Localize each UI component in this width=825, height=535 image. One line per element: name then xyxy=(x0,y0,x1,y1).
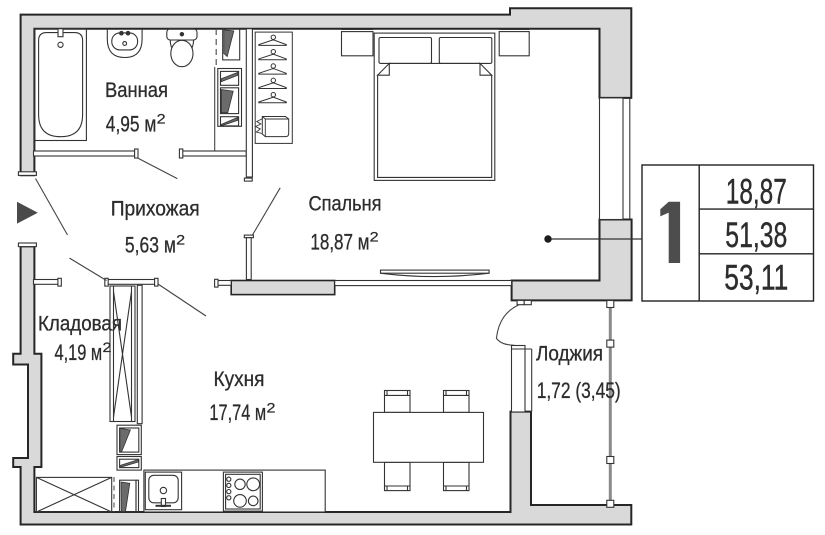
svg-text:2: 2 xyxy=(267,399,276,415)
svg-text:2: 2 xyxy=(176,232,185,248)
svg-text:1,72 (3,45): 1,72 (3,45) xyxy=(537,378,621,403)
svg-text:5,63 м: 5,63 м xyxy=(125,233,176,258)
svg-text:4,19 м: 4,19 м xyxy=(55,340,103,365)
svg-text:Прихожая: Прихожая xyxy=(111,198,200,221)
svg-text:51,38: 51,38 xyxy=(725,216,787,255)
svg-text:Спальня: Спальня xyxy=(309,193,382,216)
svg-text:4,95 м: 4,95 м xyxy=(106,112,157,137)
svg-text:53,11: 53,11 xyxy=(724,259,788,298)
svg-text:Кухня: Кухня xyxy=(214,368,265,391)
svg-text:17,74 м: 17,74 м xyxy=(209,400,266,425)
svg-text:18,87: 18,87 xyxy=(726,172,787,211)
svg-text:2: 2 xyxy=(157,111,166,127)
svg-text:2: 2 xyxy=(370,229,379,245)
svg-text:Ванная: Ванная xyxy=(105,79,168,102)
svg-text:Лоджия: Лоджия xyxy=(536,343,603,366)
svg-text:Кладовая: Кладовая xyxy=(38,312,122,335)
svg-text:18,87 м: 18,87 м xyxy=(310,229,369,254)
